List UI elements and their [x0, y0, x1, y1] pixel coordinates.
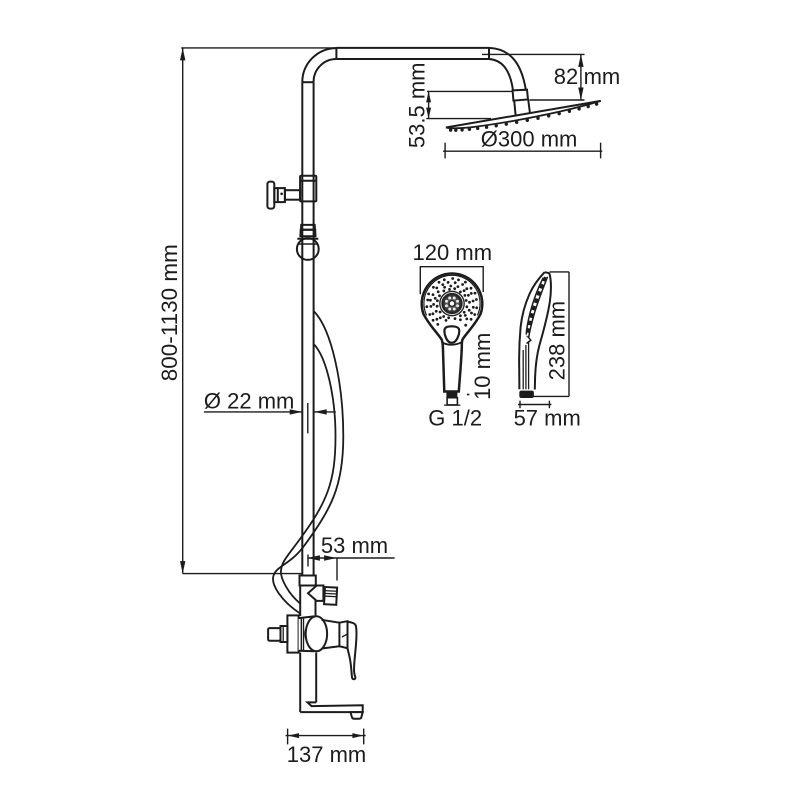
svg-text:Ø300 mm: Ø300 mm: [481, 127, 578, 152]
svg-text:82: 82: [554, 64, 578, 89]
svg-text:G 1/2: G 1/2: [428, 405, 482, 430]
svg-text:57 mm: 57 mm: [514, 405, 581, 430]
svg-text:238 mm: 238 mm: [544, 301, 569, 380]
svg-text:137 mm: 137 mm: [287, 742, 366, 767]
svg-text:10 mm: 10 mm: [470, 333, 495, 400]
svg-text:Ø 22 mm: Ø 22 mm: [204, 388, 294, 413]
svg-text:800-1130 mm: 800-1130 mm: [157, 244, 182, 381]
svg-text:120 mm: 120 mm: [413, 240, 492, 265]
svg-text:53.5 mm: 53.5 mm: [405, 63, 430, 149]
svg-text:53 mm: 53 mm: [321, 533, 388, 558]
svg-text:mm: mm: [584, 64, 621, 89]
